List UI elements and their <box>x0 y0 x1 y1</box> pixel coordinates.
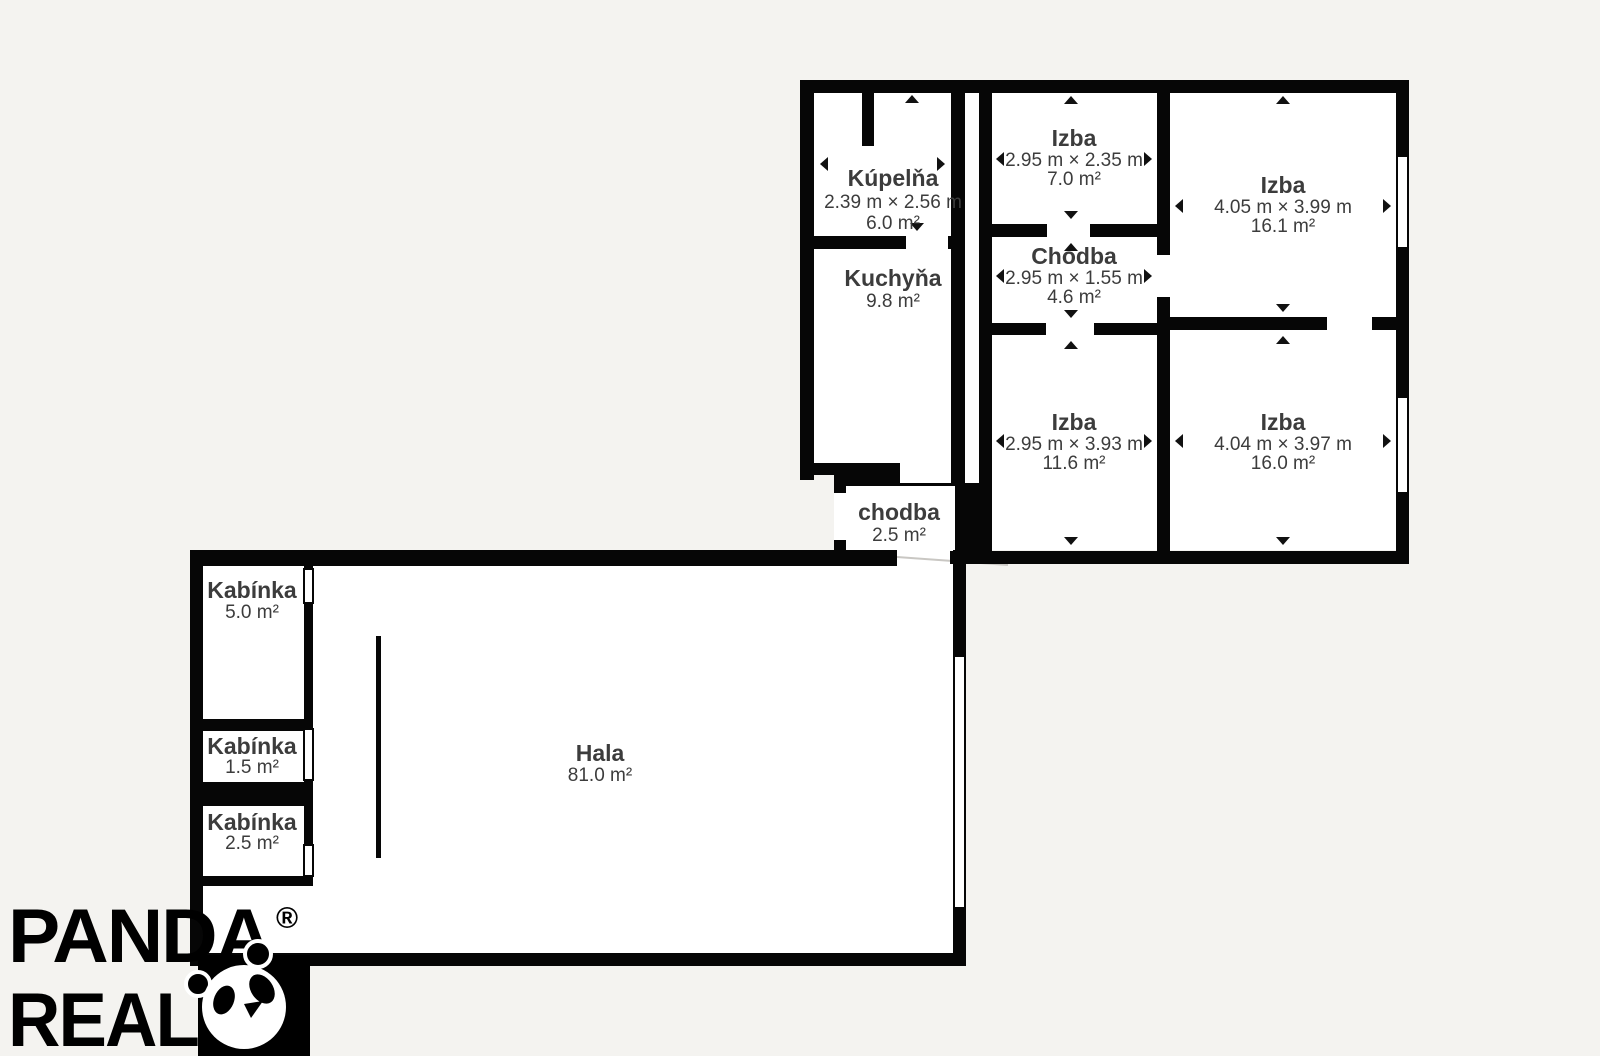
wall-shaft-right <box>979 93 992 483</box>
floorplan-page: Kúpelňa 2.39 m × 2.56 m 6.0 m² Izba 2.95… <box>0 0 1600 1056</box>
room-name: Hala <box>576 740 625 766</box>
wall-bath-stub <box>862 93 874 146</box>
room-area: 7.0 m² <box>1047 169 1101 190</box>
wall-small-chodba-right <box>955 483 992 551</box>
room-name: Kabínka <box>207 577 297 603</box>
wall-kabinka-divider-2 <box>203 782 313 806</box>
wall-kabinka-divider-1 <box>203 719 313 731</box>
door-kabinka25 <box>304 845 313 876</box>
room-name: chodba <box>858 499 940 525</box>
room-area: 2.5 m² <box>872 525 926 546</box>
room-dims: 2.95 m × 1.55 m <box>1005 268 1143 289</box>
room-area: 81.0 m² <box>568 765 632 786</box>
window-izba160 <box>1397 397 1408 493</box>
room-dims: 2.95 m × 2.35 m <box>1005 150 1143 171</box>
room-name: Izba <box>1052 409 1097 435</box>
room-area: 6.0 m² <box>866 213 920 234</box>
door-kabinka15 <box>304 729 313 780</box>
wall-left-outer <box>800 80 814 480</box>
panda-icon <box>186 941 310 1056</box>
window-izba161 <box>1397 156 1408 248</box>
room-name: Kabínka <box>207 733 297 759</box>
registered-mark: ® <box>276 902 298 935</box>
room-area: 9.8 m² <box>866 291 920 312</box>
room-name: Kabínka <box>207 809 297 835</box>
door-izba161-izba160 <box>1327 317 1372 330</box>
room-area: 16.1 m² <box>1251 216 1315 237</box>
wall-kabinka-bottom <box>203 876 313 886</box>
room-name: Kuchyňa <box>844 265 941 291</box>
floorplan-drawing: Kúpelňa 2.39 m × 2.56 m 6.0 m² Izba 2.95… <box>0 0 1600 1056</box>
room-name: Chodba <box>1031 243 1117 269</box>
room-area: 2.5 m² <box>225 833 279 854</box>
wall-hala-top <box>190 550 897 566</box>
room-area: 5.0 m² <box>225 602 279 623</box>
room-dims: 2.95 m × 3.93 m <box>1005 434 1143 455</box>
door-chodba-izba161 <box>1157 255 1170 297</box>
room-dims: 2.39 m × 2.56 m <box>824 192 962 213</box>
room-dims: 4.05 m × 3.99 m <box>1214 197 1352 218</box>
door-small-chodba-left <box>834 493 846 540</box>
floor-areas <box>203 93 1396 953</box>
wall-shaft-left <box>951 93 965 483</box>
logo-line2: REAL <box>8 978 199 1056</box>
door-chodba-izba116 <box>1046 323 1094 335</box>
wall-upperflat-bottom <box>950 551 1409 564</box>
room-area: 11.6 m² <box>1042 453 1105 474</box>
door-bath-kitchen <box>906 236 948 249</box>
room-area: 4.6 m² <box>1047 287 1101 308</box>
room-area: 16.0 m² <box>1251 453 1315 474</box>
room-name: Izba <box>1261 172 1306 198</box>
room-name: Kúpelňa <box>848 165 939 191</box>
room-dims: 4.04 m × 3.97 m <box>1214 434 1352 455</box>
room-area: 1.5 m² <box>225 757 279 778</box>
panda-ear-right <box>245 941 271 967</box>
room-name: Izba <box>1261 409 1306 435</box>
panda-real-logo: PANDA REAL ® <box>8 894 310 1056</box>
room-label-hala: Hala 81.0 m² <box>568 740 632 786</box>
door-kabinka50 <box>304 569 313 603</box>
door-izba7-chodba <box>1047 224 1090 237</box>
wall-hala-partition <box>376 636 381 858</box>
wall-top-outer <box>800 80 1409 93</box>
window-hala <box>954 656 965 908</box>
room-name: Izba <box>1052 125 1097 151</box>
wall-small-chodba-top-thin <box>900 483 957 486</box>
wall-center-vertical <box>1157 93 1170 551</box>
